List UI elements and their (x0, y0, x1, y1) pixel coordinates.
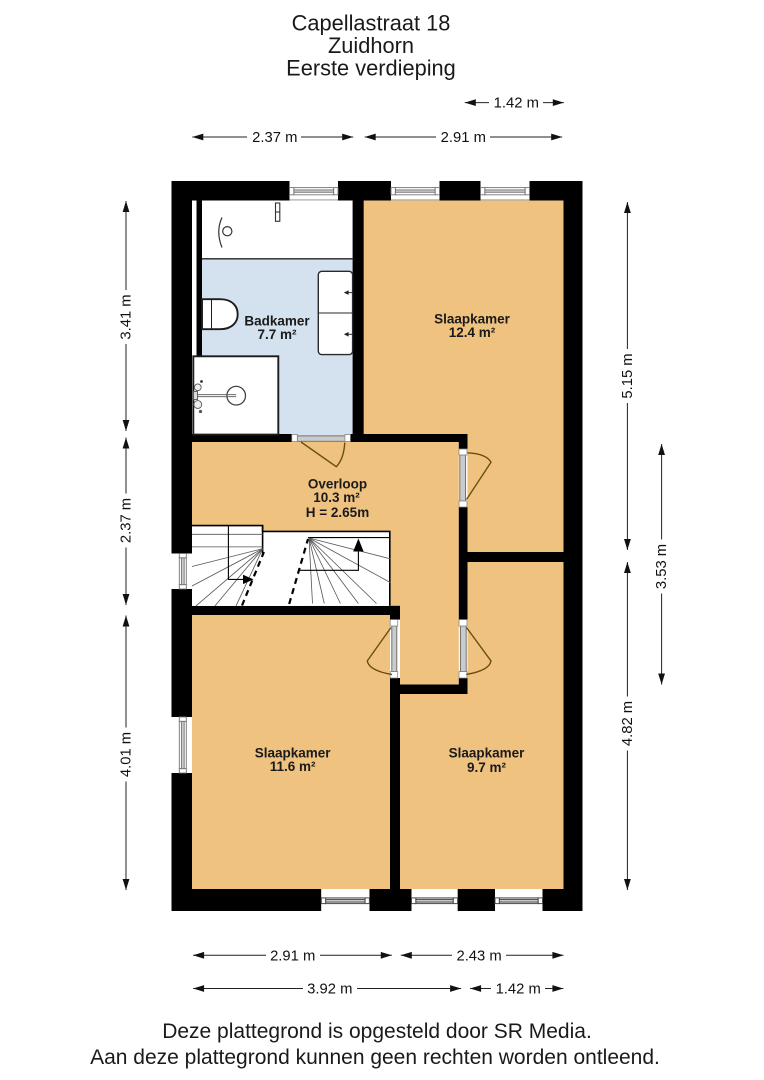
svg-text:7.7 m²: 7.7 m² (257, 327, 297, 342)
svg-text:5.15 m: 5.15 m (620, 353, 636, 398)
svg-text:10.3 m²: 10.3 m² (313, 490, 360, 505)
svg-text:Aan deze plattegrond kunnen ge: Aan deze plattegrond kunnen geen rechten… (90, 1046, 660, 1069)
svg-text:12.4 m²: 12.4 m² (449, 325, 496, 340)
svg-text:Eerste verdieping: Eerste verdieping (286, 55, 456, 80)
svg-text:2.91 m: 2.91 m (270, 948, 315, 964)
svg-text:4.82 m: 4.82 m (620, 701, 636, 746)
svg-text:3.53 m: 3.53 m (654, 544, 670, 589)
svg-text:1.42 m: 1.42 m (496, 981, 541, 997)
svg-text:2.37 m: 2.37 m (252, 130, 297, 146)
svg-text:2.43 m: 2.43 m (456, 948, 501, 964)
svg-text:4.01 m: 4.01 m (119, 732, 135, 777)
svg-text:3.41 m: 3.41 m (119, 294, 135, 339)
svg-text:2.37 m: 2.37 m (119, 498, 135, 543)
svg-text:1.42 m: 1.42 m (494, 95, 539, 111)
svg-text:Capellastraat 18: Capellastraat 18 (292, 11, 451, 36)
svg-text:Zuidhorn: Zuidhorn (328, 33, 414, 58)
svg-text:Deze plattegrond is opgesteld: Deze plattegrond is opgesteld door SR Me… (162, 1020, 592, 1043)
svg-text:H = 2.65m: H = 2.65m (306, 505, 369, 520)
svg-text:9.7 m²: 9.7 m² (467, 760, 507, 775)
svg-text:3.92 m: 3.92 m (307, 981, 352, 997)
svg-text:Slaapkamer: Slaapkamer (449, 746, 526, 761)
svg-text:2.91 m: 2.91 m (441, 130, 486, 146)
svg-text:11.6 m²: 11.6 m² (270, 759, 316, 774)
